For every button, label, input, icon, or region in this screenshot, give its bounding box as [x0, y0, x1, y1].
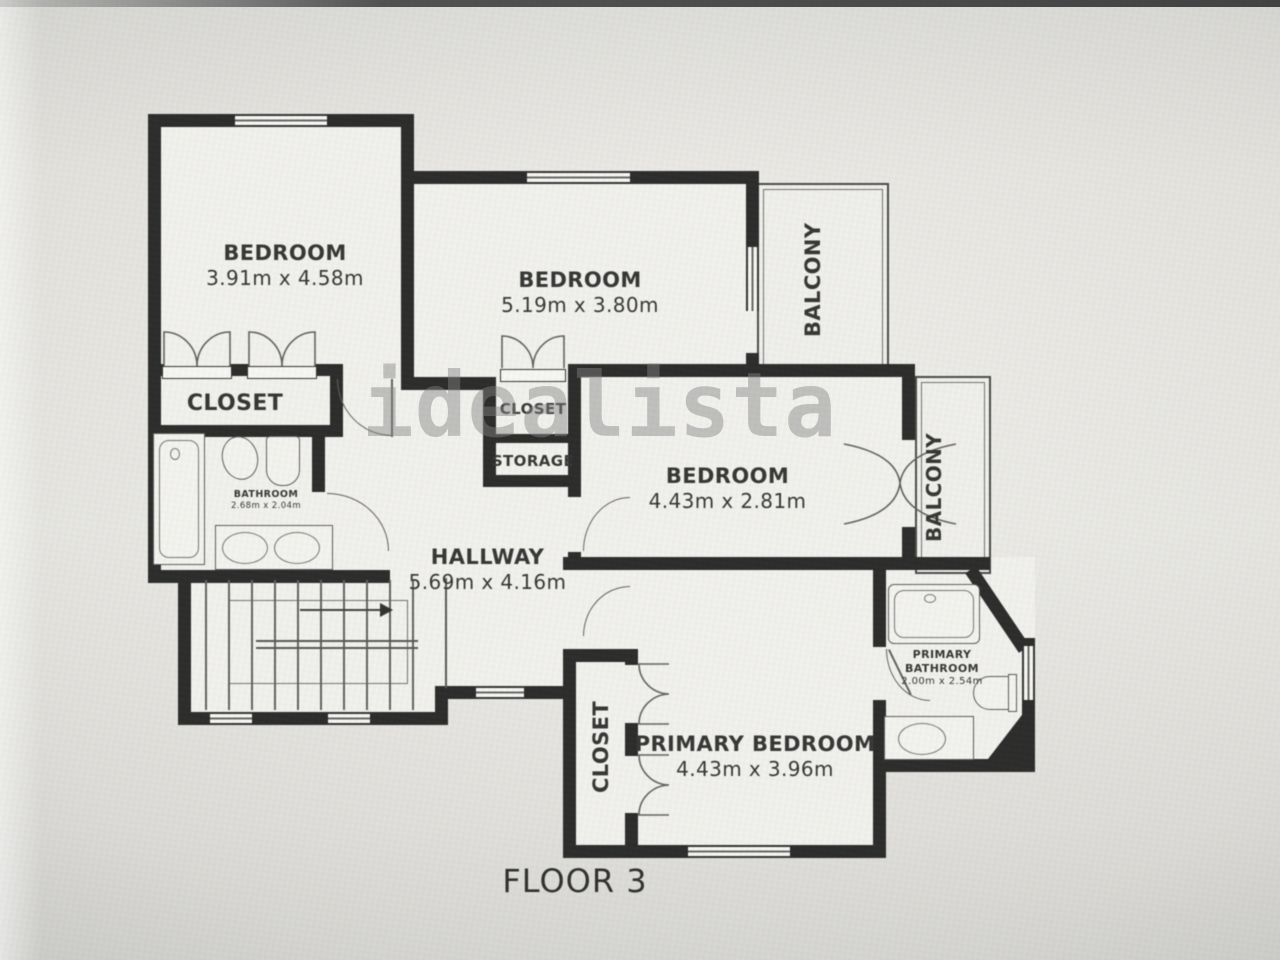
stair-direction-arrow	[380, 603, 393, 617]
bathtub-drain	[924, 594, 936, 603]
window	[476, 686, 524, 699]
stair-landing-line	[256, 647, 418, 649]
toilet-tank	[1008, 674, 1017, 712]
stair-direction-line	[300, 609, 382, 611]
wall	[483, 434, 581, 443]
room-label-storage: STORAGE	[488, 452, 578, 471]
screen-top-edge	[0, 0, 1280, 7]
stair-tread	[251, 580, 253, 710]
bathtub-inner	[159, 440, 199, 558]
stair-tread	[366, 580, 368, 710]
room-dimensions: 2.00m x 2.54m	[878, 676, 1006, 689]
room-label-hallway: HALLWAY 5.69m x 4.16m	[380, 544, 595, 595]
wall	[312, 437, 325, 492]
room-name: BATHROOM	[210, 489, 322, 501]
room-label-balcony-right: BALCONY	[922, 425, 947, 549]
room-dimensions: 5.69m x 4.16m	[380, 570, 595, 595]
door-leaf	[391, 379, 393, 437]
wall	[902, 364, 915, 440]
window	[746, 247, 759, 311]
wall	[563, 557, 990, 570]
sink-basin	[222, 532, 268, 564]
closet-door-sill	[247, 366, 317, 379]
window	[328, 712, 370, 725]
closet-door-sill	[500, 369, 566, 382]
stair-tread	[228, 580, 230, 710]
wall	[873, 570, 886, 647]
stair-tread	[297, 580, 299, 710]
wall	[401, 377, 493, 390]
room-name: BEDROOM	[460, 267, 700, 293]
wall	[568, 364, 915, 377]
stair-tread	[320, 580, 322, 710]
room-name: PRIMARY BATHROOM	[878, 648, 1006, 676]
room-name: BEDROOM	[600, 463, 855, 489]
stair-tread	[343, 580, 345, 710]
stair-tread	[389, 580, 391, 710]
room-label-closet-primary: CLOSET	[588, 686, 614, 808]
room-dimensions: 5.19m x 3.80m	[460, 293, 700, 318]
room-label-balcony-top: BALCONY	[800, 218, 826, 342]
window	[688, 845, 790, 858]
stair-tread	[205, 580, 207, 710]
closet-double-door	[162, 329, 232, 367]
wall	[630, 171, 759, 184]
room-label-closet-top-left: CLOSET	[165, 390, 305, 418]
room-dimensions: 2.68m x 2.04m	[210, 501, 322, 512]
floorplan-photo: BEDROOM 3.91m x 4.58m BEDROOM 5.19m x 3.…	[0, 0, 1280, 960]
room-name: HALLWAY	[380, 544, 595, 570]
room-label-bedroom-top: BEDROOM 5.19m x 3.80m	[460, 267, 700, 318]
floor-title: FLOOR 3	[495, 862, 655, 900]
closet-double-door	[247, 329, 317, 367]
room-name: PRIMARY BEDROOM	[620, 731, 890, 757]
stair-landing-line	[256, 640, 418, 642]
room-label-closet-middle: CLOSET	[488, 400, 578, 419]
room-label-primary-bathroom: PRIMARY BATHROOM 2.00m x 2.54m	[878, 648, 1006, 688]
room-dimensions: 4.43m x 3.96m	[620, 757, 890, 782]
room-dimensions: 4.43m x 2.81m	[600, 489, 855, 514]
sink-basin	[898, 723, 946, 755]
room-name: BEDROOM	[160, 240, 410, 266]
wall	[430, 171, 527, 184]
stair-tread	[274, 580, 276, 710]
room-label-primary-bedroom: PRIMARY BEDROOM 4.43m x 3.96m	[620, 731, 890, 782]
wall	[483, 475, 581, 487]
bathtub-drain	[170, 448, 180, 460]
window	[235, 114, 327, 127]
floorplan: BEDROOM 3.91m x 4.58m BEDROOM 5.19m x 3.…	[0, 0, 1280, 960]
wall	[746, 171, 759, 247]
sink-basin	[274, 532, 320, 564]
room-dimensions: 3.91m x 4.58m	[160, 266, 410, 291]
closet-double-door	[636, 662, 670, 726]
wall	[563, 649, 576, 858]
closet-door-sill	[162, 366, 232, 379]
stair-tread	[412, 580, 414, 710]
closet-double-door	[500, 333, 566, 369]
window	[210, 712, 252, 725]
window	[1022, 646, 1035, 700]
window	[527, 171, 630, 184]
room-label-bedroom-top-left: BEDROOM 3.91m x 4.58m	[160, 240, 410, 291]
room-label-bathroom: BATHROOM 2.68m x 2.04m	[210, 489, 322, 512]
room-label-bedroom-middle: BEDROOM 4.43m x 2.81m	[600, 463, 855, 514]
wall	[178, 570, 191, 725]
bidet	[266, 436, 300, 486]
